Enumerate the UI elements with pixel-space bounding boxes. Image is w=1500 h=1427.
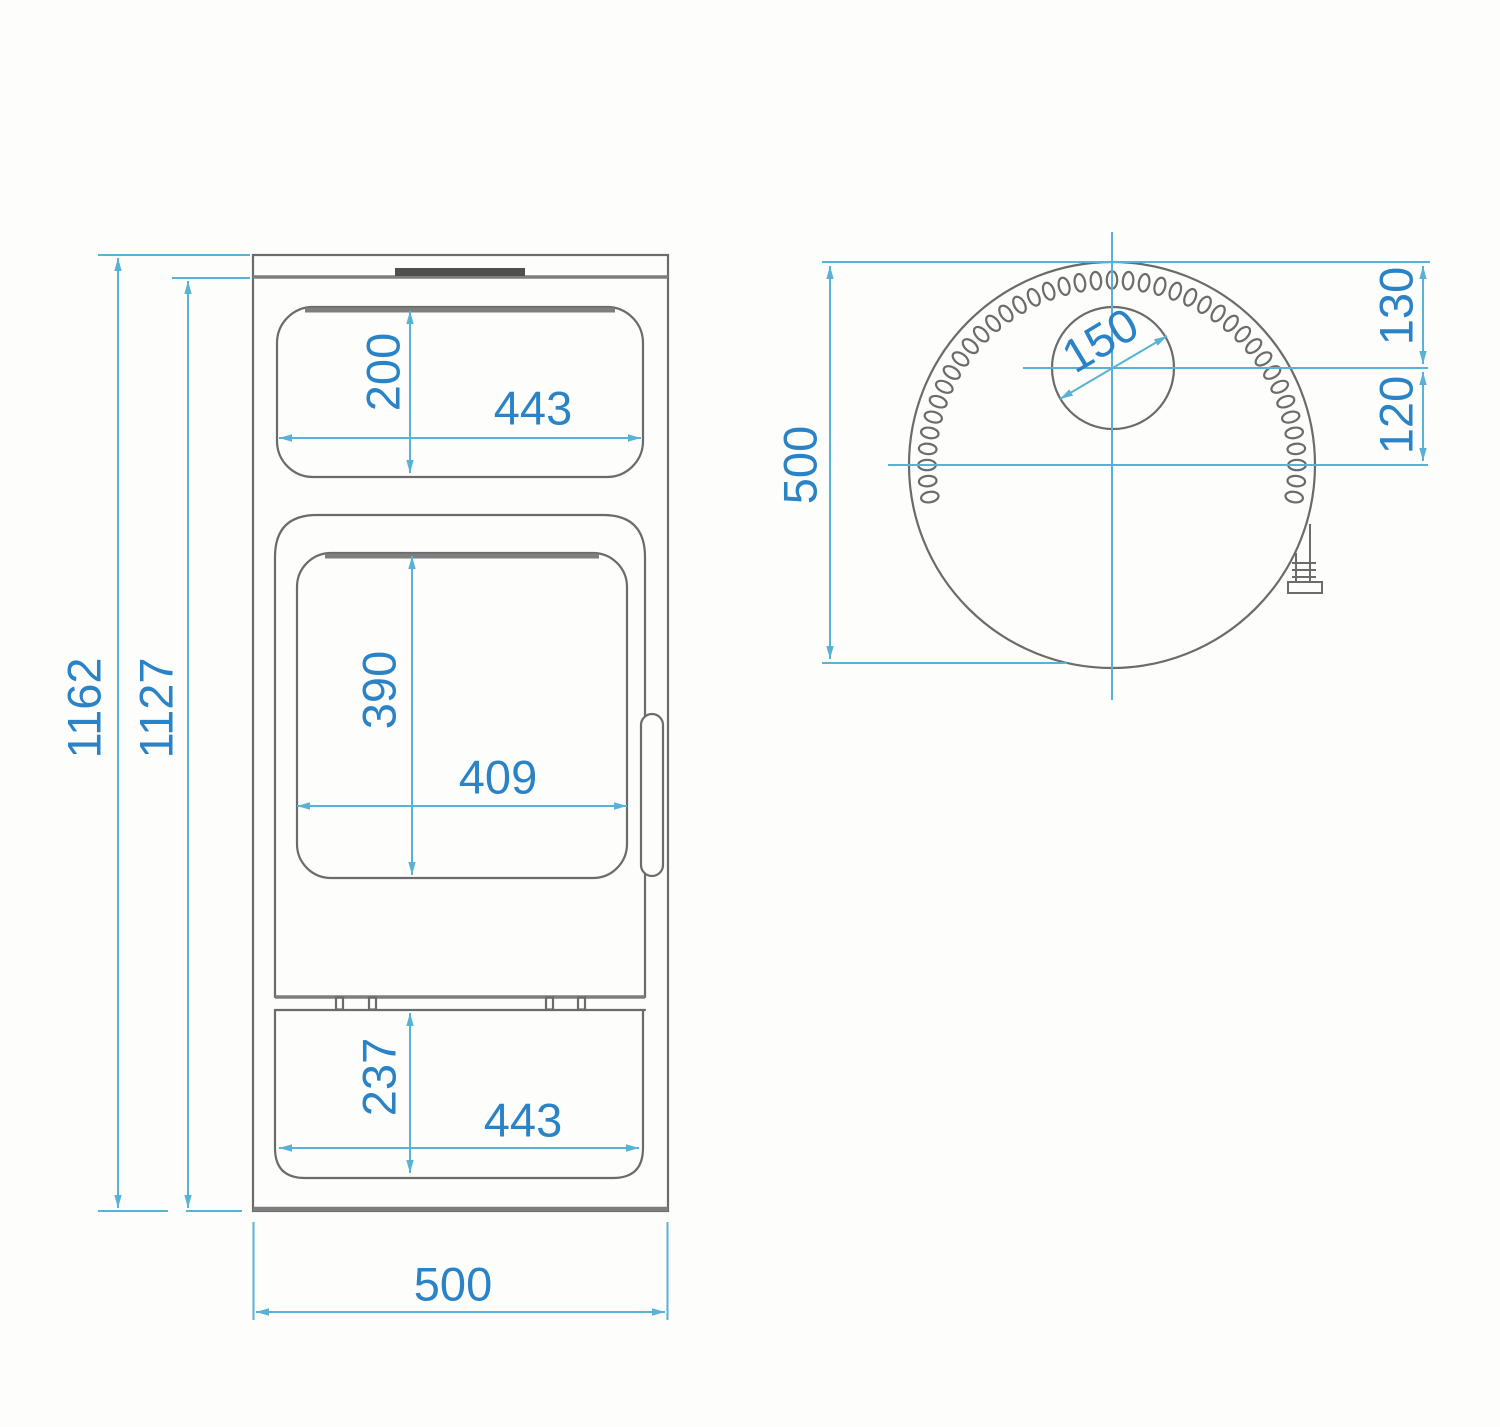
drawing-svg: 1162 1127 200 443 390 409 237 443 500 bbox=[0, 0, 1500, 1427]
vent-hole bbox=[971, 324, 991, 344]
vent-hole bbox=[920, 490, 939, 503]
dim-back-to-flue-center: 130 bbox=[1369, 267, 1422, 345]
dim-lower-compartment-width: 443 bbox=[484, 1093, 562, 1146]
door-handle bbox=[641, 714, 663, 876]
vent-hole bbox=[1209, 303, 1228, 323]
vent-hole bbox=[1262, 364, 1282, 382]
technical-drawing-canvas: 1162 1127 200 443 390 409 237 443 500 bbox=[0, 0, 1500, 1427]
vent-hole bbox=[918, 475, 936, 487]
dim-door-window-height: 390 bbox=[352, 651, 405, 729]
vent-hole bbox=[1073, 273, 1086, 292]
vent-hole bbox=[942, 364, 962, 382]
vent-hole bbox=[1285, 490, 1304, 503]
vent-hole bbox=[934, 378, 954, 395]
vent-hole bbox=[1287, 443, 1305, 455]
vent-hole bbox=[1253, 350, 1273, 369]
hinge-mark bbox=[336, 998, 343, 1010]
vent-hole bbox=[1285, 426, 1304, 439]
vent-hole bbox=[1270, 378, 1290, 395]
hinge-mark bbox=[369, 998, 376, 1010]
vent-hole bbox=[1196, 295, 1214, 315]
dim-body-height: 1127 bbox=[129, 657, 182, 758]
vent-hole bbox=[928, 394, 948, 410]
vent-hole bbox=[920, 426, 939, 439]
vent-hole bbox=[1153, 276, 1168, 296]
vent-hole bbox=[1287, 475, 1305, 487]
dim-depth: 500 bbox=[773, 426, 826, 504]
hinge-mark bbox=[578, 998, 585, 1010]
top-vent-slot bbox=[395, 268, 525, 276]
vent-hole bbox=[1276, 394, 1296, 410]
vent-hole bbox=[1233, 324, 1253, 344]
upper-window bbox=[277, 307, 643, 477]
vent-hole bbox=[997, 303, 1016, 323]
vent-hole bbox=[950, 350, 970, 369]
vent-hole bbox=[918, 443, 936, 455]
vent-hole bbox=[1137, 273, 1150, 292]
vent-hole bbox=[1221, 313, 1240, 333]
door-glass-window bbox=[297, 553, 627, 878]
vent-hole bbox=[1011, 295, 1029, 315]
vent-hole bbox=[1025, 287, 1042, 307]
dim-upper-window-height: 200 bbox=[356, 333, 409, 411]
dim-upper-window-width: 443 bbox=[494, 381, 572, 434]
latch-base bbox=[1288, 582, 1322, 593]
vent-hole bbox=[1041, 281, 1057, 301]
lower-compartment-outline bbox=[275, 1010, 643, 1178]
dim-overall-height: 1162 bbox=[57, 657, 110, 758]
front-view-dimensions: 1162 1127 200 443 390 409 237 443 500 bbox=[57, 255, 667, 1320]
vent-hole bbox=[1057, 276, 1072, 296]
dim-flue-center-to-axis: 120 bbox=[1369, 376, 1422, 454]
vent-hole bbox=[1090, 271, 1102, 289]
vent-hole bbox=[1182, 287, 1199, 307]
vent-hole bbox=[960, 336, 980, 355]
vent-hole bbox=[923, 410, 943, 425]
front-view bbox=[253, 255, 668, 1211]
vent-hole bbox=[1244, 336, 1264, 355]
vent-hole bbox=[1167, 281, 1183, 301]
vent-hole bbox=[1122, 271, 1134, 289]
dim-overall-width: 500 bbox=[414, 1257, 492, 1310]
dim-lower-compartment-height: 237 bbox=[352, 1038, 405, 1116]
top-view: 500 130 120 150 bbox=[773, 232, 1430, 700]
hinge-mark bbox=[546, 998, 553, 1010]
cabinet-outline bbox=[253, 255, 668, 1211]
vent-hole bbox=[1281, 410, 1301, 425]
vent-hole bbox=[983, 313, 1002, 333]
dim-door-window-width: 409 bbox=[459, 750, 537, 803]
